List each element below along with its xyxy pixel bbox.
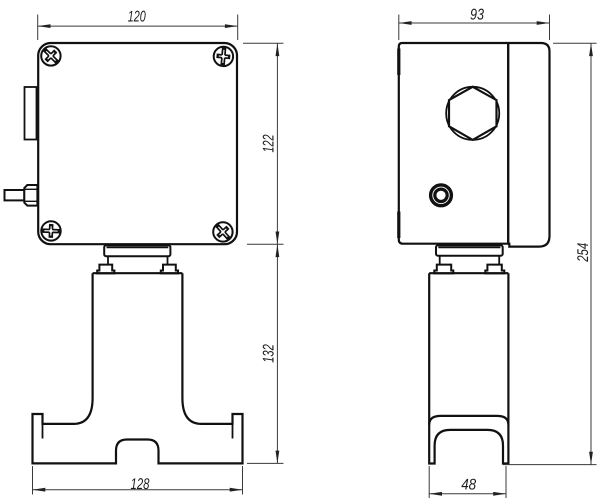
svg-text:122: 122 bbox=[261, 134, 278, 152]
svg-text:132: 132 bbox=[261, 344, 278, 363]
svg-text:93: 93 bbox=[470, 6, 484, 23]
svg-text:254: 254 bbox=[575, 243, 592, 263]
svg-text:120: 120 bbox=[128, 9, 146, 26]
svg-text:48: 48 bbox=[461, 477, 476, 494]
svg-text:128: 128 bbox=[131, 476, 150, 493]
